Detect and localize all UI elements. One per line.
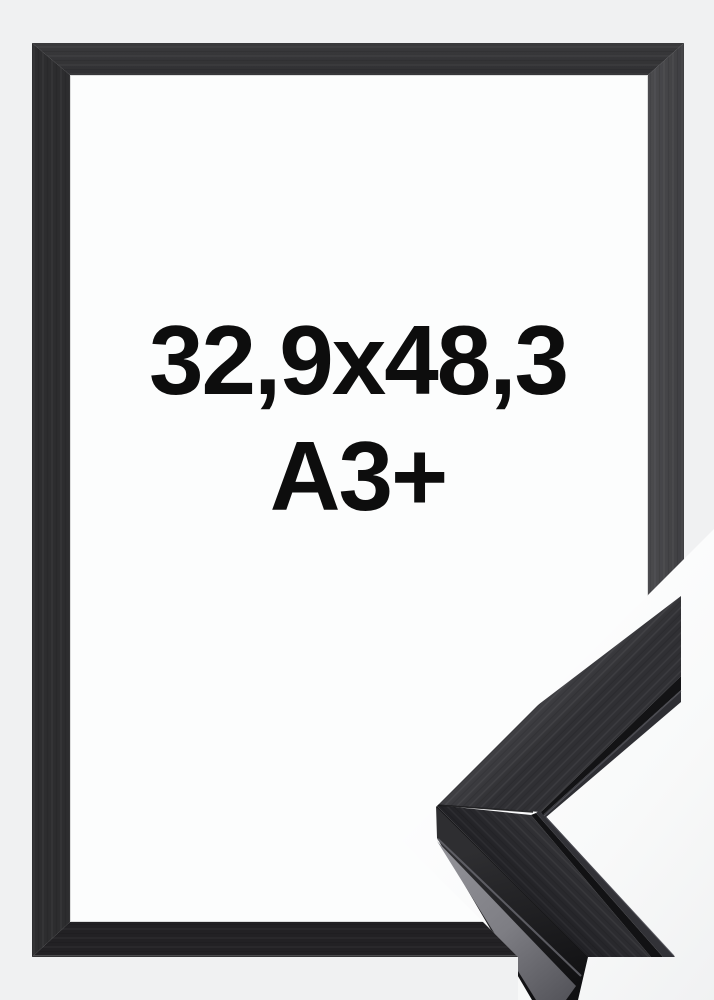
frame-product-image: 32,9x48,3 A3+ bbox=[0, 0, 714, 1000]
frame-grain-left bbox=[32, 43, 70, 957]
frame-grain-top bbox=[32, 43, 684, 75]
frame-artwork bbox=[0, 0, 714, 1000]
